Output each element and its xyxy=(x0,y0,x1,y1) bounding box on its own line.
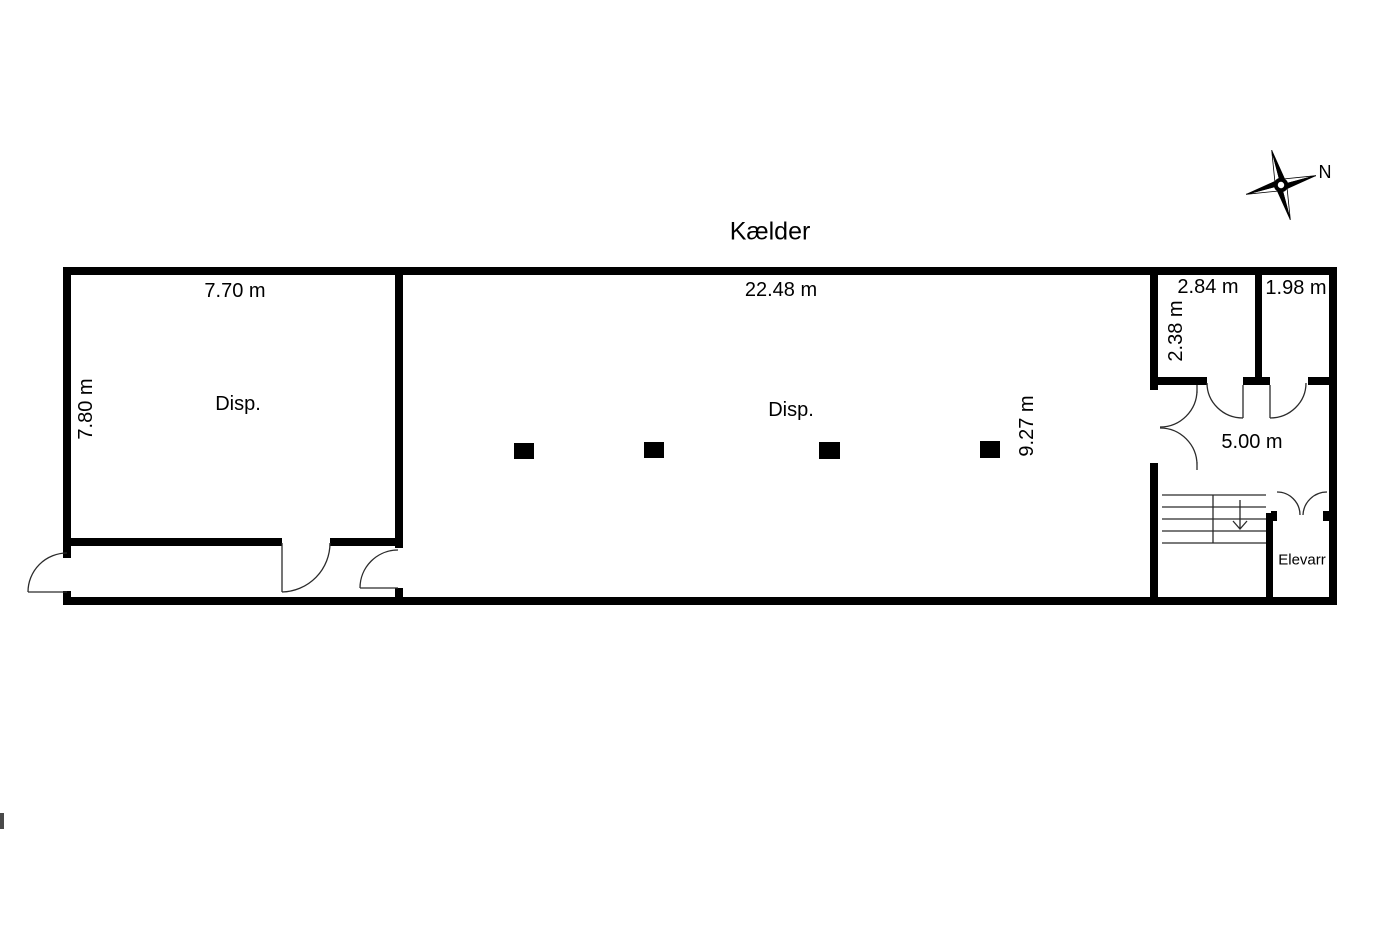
columns xyxy=(514,441,1000,459)
dim-left-room-height: 7.80 m xyxy=(76,378,96,439)
column-marker xyxy=(819,442,840,459)
dim-left-room-width: 7.70 m xyxy=(204,281,265,301)
dim-topright-room2-width: 1.98 m xyxy=(1265,278,1326,298)
dim-central-room-height: 9.27 m xyxy=(1017,395,1037,456)
floor-plan-page: Kælder N 7.70 m 7.80 m Disp. 22.48 m 9.2… xyxy=(0,0,1400,934)
wall-outer-top xyxy=(63,267,1337,275)
dim-stair-hall-width: 5.00 m xyxy=(1221,432,1282,452)
stair-down-arrow-icon xyxy=(1233,500,1247,529)
column-marker xyxy=(514,443,534,459)
dim-topright-room1-height: 2.38 m xyxy=(1166,300,1186,361)
floor-plan-drawing xyxy=(0,0,1400,934)
wall-left-room-right-lower xyxy=(395,588,403,605)
interior-walls xyxy=(71,267,1329,605)
door-swing-double-hall xyxy=(1160,385,1197,470)
stairs xyxy=(1162,495,1266,543)
room-label-left: Disp. xyxy=(215,394,261,414)
door-swing-room-198 xyxy=(1270,383,1306,418)
wall-left-room-right-upper xyxy=(395,267,403,548)
wall-corridor-top-right xyxy=(330,538,395,546)
wall-topright-divider xyxy=(1255,267,1262,385)
wall-elevator-left xyxy=(1266,513,1273,605)
door-swing-central-room xyxy=(360,550,398,588)
wall-topright-bottom-3 xyxy=(1308,377,1329,385)
page-title: Kælder xyxy=(730,220,811,245)
room-label-central: Disp. xyxy=(768,400,814,420)
dim-topright-room1-width: 2.84 m xyxy=(1177,277,1238,297)
column-marker xyxy=(980,441,1000,458)
column-marker xyxy=(644,442,664,458)
wall-right-section-left-lower xyxy=(1150,463,1158,605)
wall-corridor-top-left xyxy=(71,538,282,546)
edge-artifact xyxy=(0,813,4,829)
outer-walls xyxy=(63,267,1337,605)
wall-topright-bottom-1 xyxy=(1158,377,1207,385)
compass-rose-icon xyxy=(1237,141,1325,229)
wall-elevator-jamb-right xyxy=(1323,511,1329,521)
wall-outer-right xyxy=(1329,267,1337,605)
dim-central-room-width: 22.48 m xyxy=(745,280,817,300)
wall-right-section-left-upper xyxy=(1150,267,1158,390)
stair-treads xyxy=(1162,495,1266,543)
door-swing-left-room xyxy=(282,543,330,592)
wall-elevator-jamb-left xyxy=(1271,511,1277,521)
door-swing-elevator xyxy=(1277,492,1327,515)
room-label-elevator: Elevarr xyxy=(1278,553,1326,568)
door-swing-exterior-left xyxy=(28,553,67,592)
door-swing-room-284 xyxy=(1207,383,1243,418)
wall-outer-left-upper xyxy=(63,267,71,558)
wall-outer-left-lower xyxy=(63,591,71,605)
north-label: N xyxy=(1319,163,1332,181)
wall-outer-bottom xyxy=(63,597,1337,605)
